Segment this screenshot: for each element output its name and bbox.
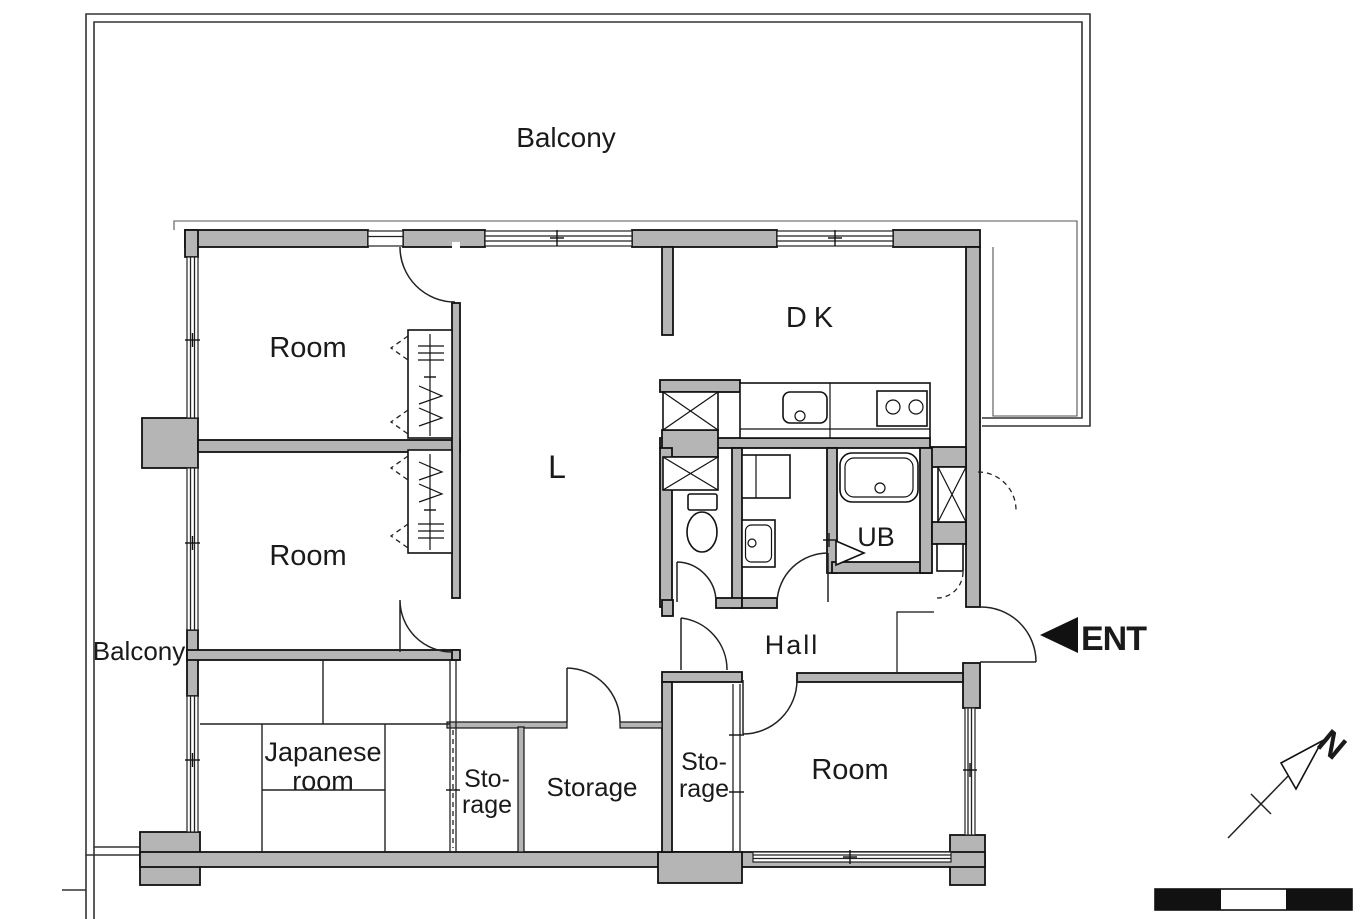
room-label-storage-left-line1: Sto- [464, 765, 510, 793]
closet-lower [391, 450, 452, 553]
door-arc-room3 [743, 680, 797, 734]
door-arc-washroom [777, 553, 828, 602]
door-arc-hall [681, 618, 727, 670]
door-arc-shoe-cabinet [937, 572, 963, 598]
room-label-dk: DK [786, 302, 840, 334]
room-label-japanese-line1: Japanese [264, 737, 381, 767]
door-arc-entry-closet [978, 472, 1016, 510]
sliding-door-storage-right [729, 684, 744, 852]
entrance-label: ENT [1081, 620, 1147, 658]
room-label-room1: Room [269, 332, 346, 364]
sliding-partition [446, 660, 460, 852]
bathtub-icon [840, 453, 918, 502]
north-label: N [1310, 722, 1353, 767]
toilet-icon [687, 494, 717, 552]
shoe-cabinet-icon [937, 544, 963, 571]
room-label-balcony-left: Balcony [93, 636, 186, 666]
compass: N [1228, 722, 1353, 838]
closet-upper [391, 330, 452, 438]
room-label-ub: UB [857, 522, 895, 552]
scale-bar [1155, 889, 1352, 910]
shaft-box-icon [663, 392, 718, 430]
washbasin-icon [742, 520, 775, 567]
entrance-step-line [897, 612, 934, 672]
kitchen-counter [740, 383, 930, 438]
stove-icon [877, 391, 927, 426]
room-label-living: L [548, 449, 566, 485]
door-arc-storage [567, 668, 620, 722]
room-label-storage-right-line2: rage [679, 775, 729, 803]
room-label-japanese-line2: room [292, 766, 354, 796]
floor-plan-drawing: Balcony Balcony Room Room Room DK L UB H… [0, 0, 1360, 919]
room-label-room3: Room [811, 754, 888, 786]
entrance-arrow-icon [1040, 617, 1078, 653]
floor-plan-page: Balcony Balcony Room Room Room DK L UB H… [0, 0, 1360, 919]
room-label-storage-right-line1: Sto- [681, 748, 727, 776]
room-label-hall: Hall [765, 630, 820, 660]
washing-machine-icon [742, 455, 790, 498]
door-arc-room1 [400, 247, 455, 302]
entry-closet-icon [938, 467, 966, 522]
room-label-room2: Room [269, 540, 346, 572]
door-arc-entrance [980, 607, 1036, 662]
door-arc-room2 [400, 600, 452, 652]
door-arc-toilet [677, 562, 716, 602]
room-label-storage-left-line2: rage [462, 791, 512, 819]
entrance-marker: ENT [1040, 617, 1147, 658]
room-label-balcony-top: Balcony [516, 122, 616, 153]
shaft-box-icon [663, 457, 718, 490]
room-label-storage-center: Storage [546, 772, 637, 802]
